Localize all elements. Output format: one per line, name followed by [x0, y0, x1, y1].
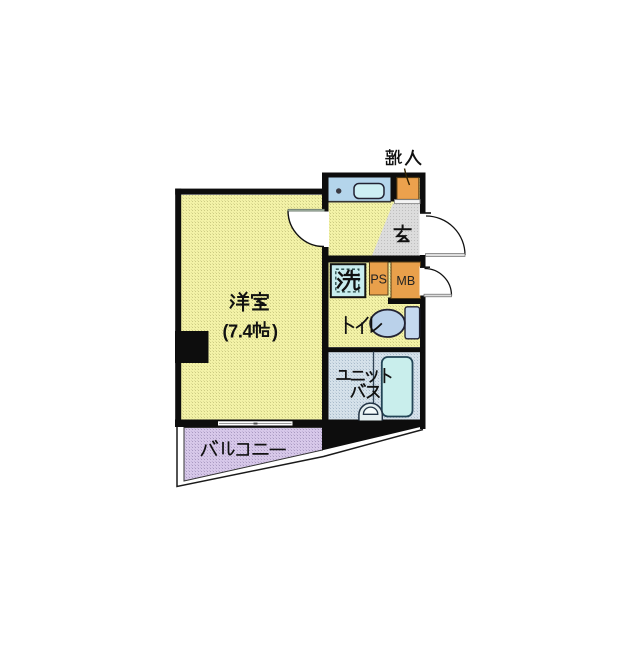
- svg-text:(7.4: (7.4: [223, 322, 253, 342]
- svg-text:MB: MB: [396, 274, 415, 288]
- svg-text:PS: PS: [370, 273, 387, 287]
- svg-text:): ): [272, 322, 278, 342]
